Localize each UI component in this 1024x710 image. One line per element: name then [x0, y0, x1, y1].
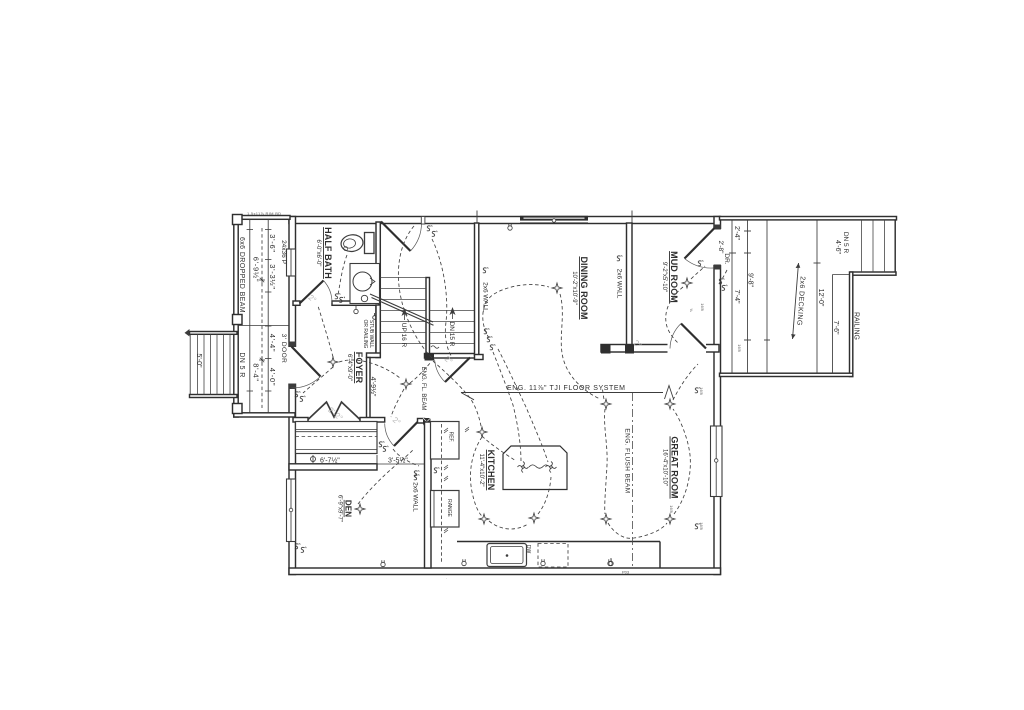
svg-text:OR RAILING: OR RAILING	[362, 320, 368, 349]
svg-text:2'-4": 2'-4"	[733, 226, 740, 240]
svg-text:DN 15 R: DN 15 R	[448, 322, 455, 347]
svg-text:16'8: 16'8	[699, 522, 704, 530]
svg-text:3'-6": 3'-6"	[268, 234, 277, 252]
svg-text:12'-0": 12'-0"	[817, 289, 824, 307]
svg-text:FOYER: FOYER	[354, 352, 364, 384]
svg-text:RAILING: RAILING	[853, 312, 860, 340]
svg-text:ENG. 11⅞" TJI FLOOR SYSTEM: ENG. 11⅞" TJI FLOOR SYSTEM	[507, 385, 626, 392]
svg-text:.: .	[446, 575, 447, 580]
svg-text:7'-4": 7'-4"	[733, 290, 740, 304]
svg-text:16'8: 16'8	[699, 387, 704, 395]
svg-text:DEN: DEN	[344, 500, 353, 517]
svg-text:6x6 DROPPED BEAM: 6x6 DROPPED BEAM	[238, 237, 245, 313]
svg-text:2'-8": 2'-8"	[717, 241, 724, 255]
svg-text:9'-8": 9'-8"	[747, 273, 754, 287]
svg-text:10'-2"x10'-9": 10'-2"x10'-9"	[571, 271, 577, 305]
svg-text:REF.: REF.	[448, 432, 454, 443]
svg-text:DR.: DR.	[723, 253, 730, 264]
svg-text:DN 5 R: DN 5 R	[842, 232, 849, 254]
svg-text:6'-9"x9'-7": 6'-9"x9'-7"	[337, 495, 343, 522]
svg-text:4'-9½": 4'-9½"	[369, 377, 377, 397]
svg-text:11'-4"x10'-2": 11'-4"x10'-2"	[478, 453, 484, 486]
svg-text:P03: P03	[622, 570, 630, 575]
svg-text:2x6 WALL: 2x6 WALL	[482, 282, 489, 312]
svg-text:9'-2"x5'-10": 9'-2"x5'-10"	[661, 262, 667, 292]
svg-text:KITCHEN: KITCHEN	[486, 450, 496, 491]
svg-text:RANGE: RANGE	[446, 499, 452, 517]
svg-text:DW: DW	[525, 545, 531, 554]
svg-text:2x6 WALL: 2x6 WALL	[616, 269, 623, 299]
svg-text:MUD ROOM: MUD ROOM	[669, 251, 679, 303]
svg-text:ENG. FL. BEAM: ENG. FL. BEAM	[420, 367, 426, 411]
svg-text:6'-0"x6'-0": 6'-0"x6'-0"	[315, 240, 321, 267]
svg-text:6'-4"x9'-0": 6'-4"x9'-0"	[346, 354, 352, 381]
svg-text:3'-3½": 3'-3½"	[268, 264, 277, 289]
svg-text:16'8: 16'8	[700, 303, 705, 311]
svg-text:24x36 P: 24x36 P	[280, 240, 287, 264]
svg-text:2x6 WALL: 2x6 WALL	[412, 482, 419, 512]
svg-text:ENG. FLUSH BEAM: ENG. FLUSH BEAM	[624, 428, 631, 493]
svg-text:DN 5 R: DN 5 R	[238, 352, 245, 377]
svg-text:16'8: 16'8	[669, 505, 674, 513]
svg-text:8'-4": 8'-4"	[252, 363, 261, 381]
svg-text:6'-7½": 6'-7½"	[320, 457, 340, 465]
svg-text:4'-4": 4'-4"	[268, 334, 277, 352]
svg-text:HALF BATH: HALF BATH	[323, 227, 333, 279]
svg-text:16'8: 16'8	[737, 344, 742, 352]
svg-text:4'-6": 4'-6"	[834, 240, 841, 254]
svg-text:3' DOOR: 3' DOOR	[280, 334, 287, 364]
svg-text:DINING ROOM: DINING ROOM	[579, 256, 589, 319]
svg-text:1.5x11⅞ RIM BD: 1.5x11⅞ RIM BD	[247, 211, 281, 216]
svg-text:7'-6": 7'-6"	[832, 321, 839, 335]
svg-text:16'-4"x10'-10": 16'-4"x10'-10"	[662, 449, 668, 486]
svg-text:5'-0": 5'-0"	[195, 354, 202, 368]
svg-text:4'-0": 4'-0"	[268, 368, 277, 386]
svg-text:UP 16 R: UP 16 R	[400, 323, 407, 348]
svg-text:GREAT ROOM: GREAT ROOM	[670, 436, 680, 498]
svg-text:6'-9½": 6'-9½"	[252, 257, 261, 282]
